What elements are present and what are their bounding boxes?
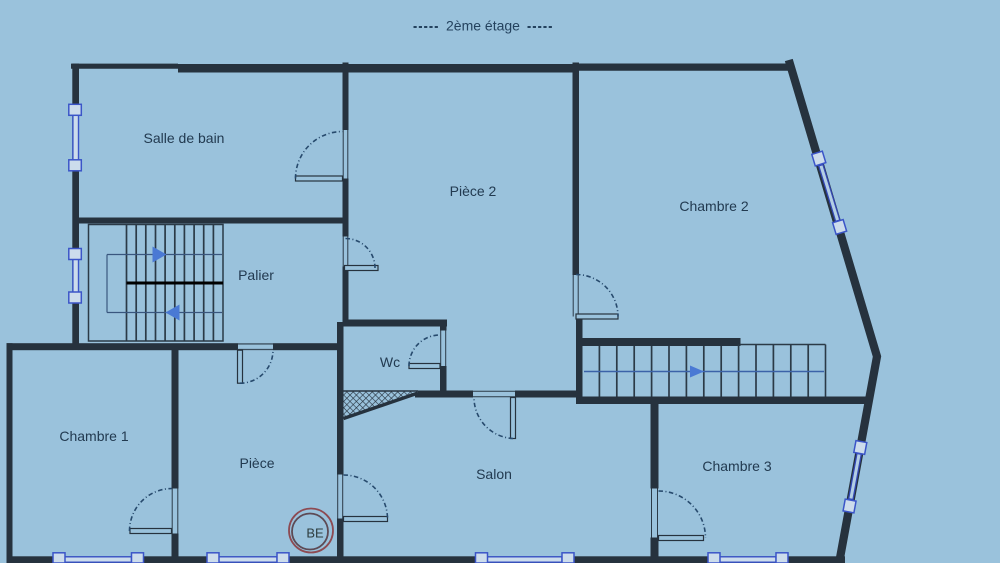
svg-text:2ème étage: 2ème étage — [446, 18, 520, 34]
svg-text:BE: BE — [306, 526, 324, 541]
svg-text:Palier: Palier — [238, 267, 274, 283]
svg-text:Chambre 1: Chambre 1 — [59, 428, 128, 444]
svg-text:Chambre 2: Chambre 2 — [679, 198, 748, 214]
svg-text:Salon: Salon — [476, 466, 512, 482]
svg-text:Pièce: Pièce — [239, 455, 274, 471]
svg-text:Salle de bain: Salle de bain — [144, 130, 225, 146]
svg-text:Wc: Wc — [380, 354, 400, 370]
svg-text:Pièce 2: Pièce 2 — [450, 183, 497, 199]
svg-text:Chambre 3: Chambre 3 — [702, 458, 771, 474]
